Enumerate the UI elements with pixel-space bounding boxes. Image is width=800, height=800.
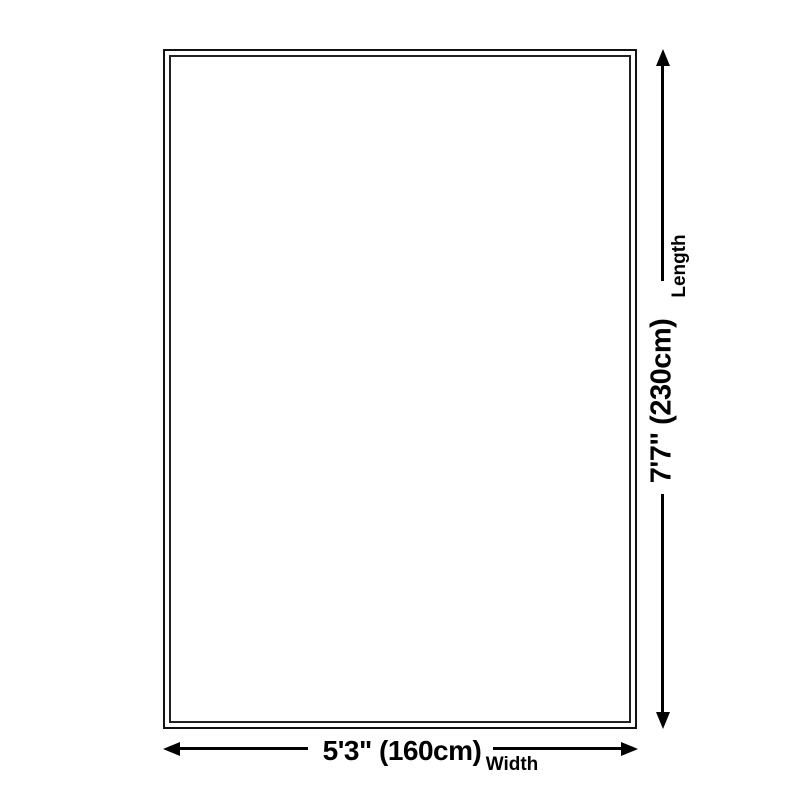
length-label: Length (669, 234, 691, 297)
width-dimension-line-left (179, 747, 308, 750)
width-dimension-line-right (493, 747, 622, 750)
length-dimension-line-upper (661, 62, 664, 281)
arrow-left-icon (163, 742, 180, 756)
rug-outline-inner-border (169, 55, 631, 723)
length-dimension-line-lower (661, 494, 664, 713)
rug-size-diagram: Length 7'7" (230cm) 5'3" (160cm) Width (0, 0, 800, 800)
width-value: 5'3" (160cm) (323, 735, 482, 767)
arrow-right-icon (621, 742, 638, 756)
width-label: Width (486, 754, 539, 776)
length-value: 7'7" (230cm) (646, 319, 679, 484)
arrow-down-icon (656, 712, 670, 729)
rug-outline (163, 49, 637, 729)
